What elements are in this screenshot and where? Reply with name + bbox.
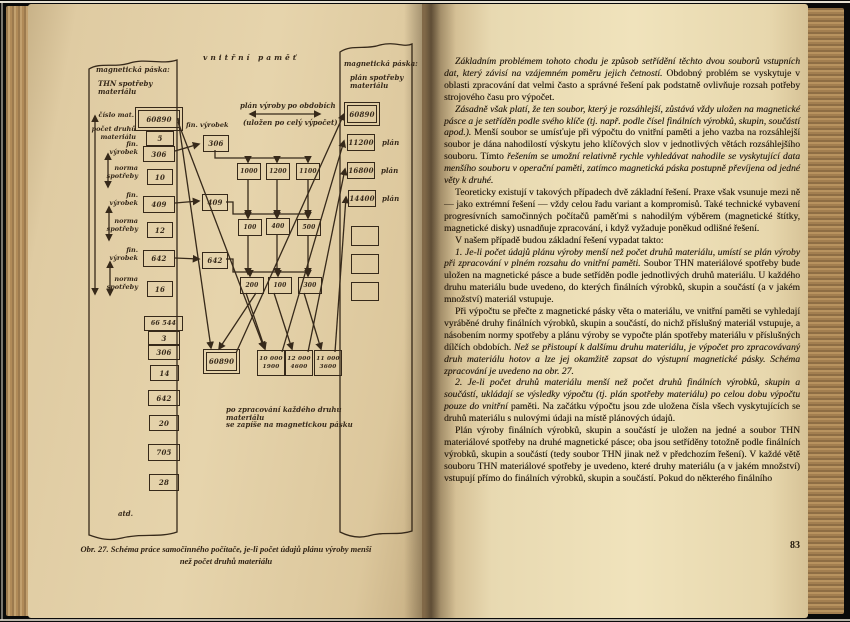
output-cell: 14400 (348, 190, 376, 207)
plan-tag: plán (382, 194, 399, 203)
sum-cell: 10 000 1900 (257, 350, 285, 376)
book-photo: magnetická páska: THN spotřeby materiálu… (0, 0, 850, 622)
field-label: norma spotřeby (102, 218, 138, 234)
plan-header: plán výroby po obdobích (240, 102, 350, 110)
grid-cell: 1200 (266, 163, 290, 180)
material-number-cell: 60890 (206, 352, 237, 371)
paragraph: Plán výroby finálních výrobků, skupin a … (444, 425, 800, 485)
paragraph: Zásadně však platí, že ten soubor, který… (444, 104, 800, 187)
memory-cell: 642 (202, 252, 228, 269)
paragraph: 2. Je-li počet druhů materiálu menší než… (444, 377, 800, 425)
left-tape-subtitle: THN spotřeby materiálu (98, 80, 156, 97)
sum-bottom: 3600 (320, 363, 337, 371)
stack-cell: 705 (148, 444, 180, 461)
grid-cell: 100 (268, 277, 292, 294)
field-label: norma spotřeby (102, 276, 138, 292)
output-cell-empty (351, 226, 379, 246)
text-column: Základním problémem tohoto chodu je způs… (444, 56, 800, 548)
stack-cell: 3 (148, 331, 180, 345)
left-tape-title: magnetická páska: (96, 66, 178, 74)
plan-tag: plán (382, 138, 399, 147)
plan-subheader: (uložen po celý výpočet) (243, 119, 353, 127)
stack-cell: 14 (150, 365, 179, 381)
output-cell-empty (351, 282, 379, 301)
right-tape-title: magnetická páska: (344, 60, 424, 68)
output-cell: 16800 (347, 162, 375, 179)
stack-cell: 642 (148, 390, 180, 406)
output-cell: 60890 (347, 105, 377, 123)
photo-border-bottom (0, 619, 850, 621)
sum-top: 11 000 (316, 355, 339, 363)
field-label: číslo mat. (88, 112, 134, 120)
field-label: norma spotřeby (102, 165, 138, 181)
tape-cell: 5 (146, 131, 174, 146)
tape-cell: 642 (143, 250, 175, 267)
grid-cell: 500 (297, 219, 321, 236)
stack-cell: 66 544 (144, 316, 183, 331)
sum-cell: 12 000 4600 (285, 350, 313, 376)
stack-cell: 20 (149, 415, 179, 431)
stack-cell: 306 (148, 345, 180, 360)
output-cell-empty (351, 254, 379, 274)
grid-cell: 300 (298, 277, 322, 294)
grid-cell: 100 (238, 219, 262, 236)
tape-cell: 10 (147, 169, 173, 185)
tape-cell: 16 (147, 281, 173, 297)
sum-bottom: 1900 (263, 363, 280, 371)
paragraph-segment: Teoreticky existují v takových případech… (444, 187, 800, 234)
paragraph: 1. Je-li počet údajů plánu výroby menší … (444, 247, 800, 307)
figure-caption-line2: než počet druhů materiálu (55, 556, 397, 567)
memory-cell: 306 (203, 135, 229, 152)
sum-top: 10 000 (259, 355, 282, 363)
grid-cell: 1100 (296, 163, 320, 180)
paragraph-segment: Plán výroby finálních výrobků, skupin a … (444, 425, 800, 484)
output-cell: 11200 (347, 134, 375, 151)
photo-border-left (1, 2, 3, 620)
grid-cell: 200 (240, 277, 264, 294)
right-tape-subtitle: plán spotřeby materiálu (350, 74, 405, 91)
fin-label: fin. výrobek (186, 122, 232, 130)
field-label: fin. výrobek (106, 141, 138, 157)
paragraph-segment: V našem případě budou základní řešení vy… (455, 235, 663, 246)
paragraph: Při výpočtu se přečte z magnetické pásky… (444, 306, 800, 377)
sum-bottom: 4600 (291, 363, 308, 371)
sum-top: 12 000 (287, 355, 310, 363)
page-number: 83 (760, 540, 800, 551)
tape-cell: 60890 (138, 110, 180, 128)
plan-tag: plán (381, 166, 398, 175)
etc-label: atd. (118, 510, 148, 518)
diagram-note: se zapíše na magnetickou pásku (226, 421, 376, 429)
paragraph: V našem případě budou základní řešení vy… (444, 235, 800, 247)
memory-cell: 409 (202, 194, 228, 211)
photo-border-top (0, 1, 850, 3)
field-label: fin. výrobek (106, 247, 138, 263)
paragraph: Teoreticky existují v takových případech… (444, 187, 800, 235)
tape-cell: 12 (147, 222, 173, 238)
stack-cell: 28 (149, 474, 179, 491)
page-stack-right-edge (806, 8, 844, 614)
paragraph: Základním problémem tohoto chodu je způs… (444, 56, 800, 104)
memory-title: vnitřní paměť (203, 53, 313, 62)
left-page (28, 4, 422, 618)
sum-cell: 11 000 3600 (314, 350, 342, 376)
tape-cell: 306 (143, 146, 175, 162)
field-label: fin. výrobek (106, 192, 138, 208)
grid-cell: 400 (266, 218, 290, 235)
tape-cell: 409 (143, 196, 175, 213)
figure-caption-line1: Obr. 27. Schéma práce samočinného počíta… (55, 544, 397, 555)
grid-cell: 1000 (237, 163, 261, 180)
